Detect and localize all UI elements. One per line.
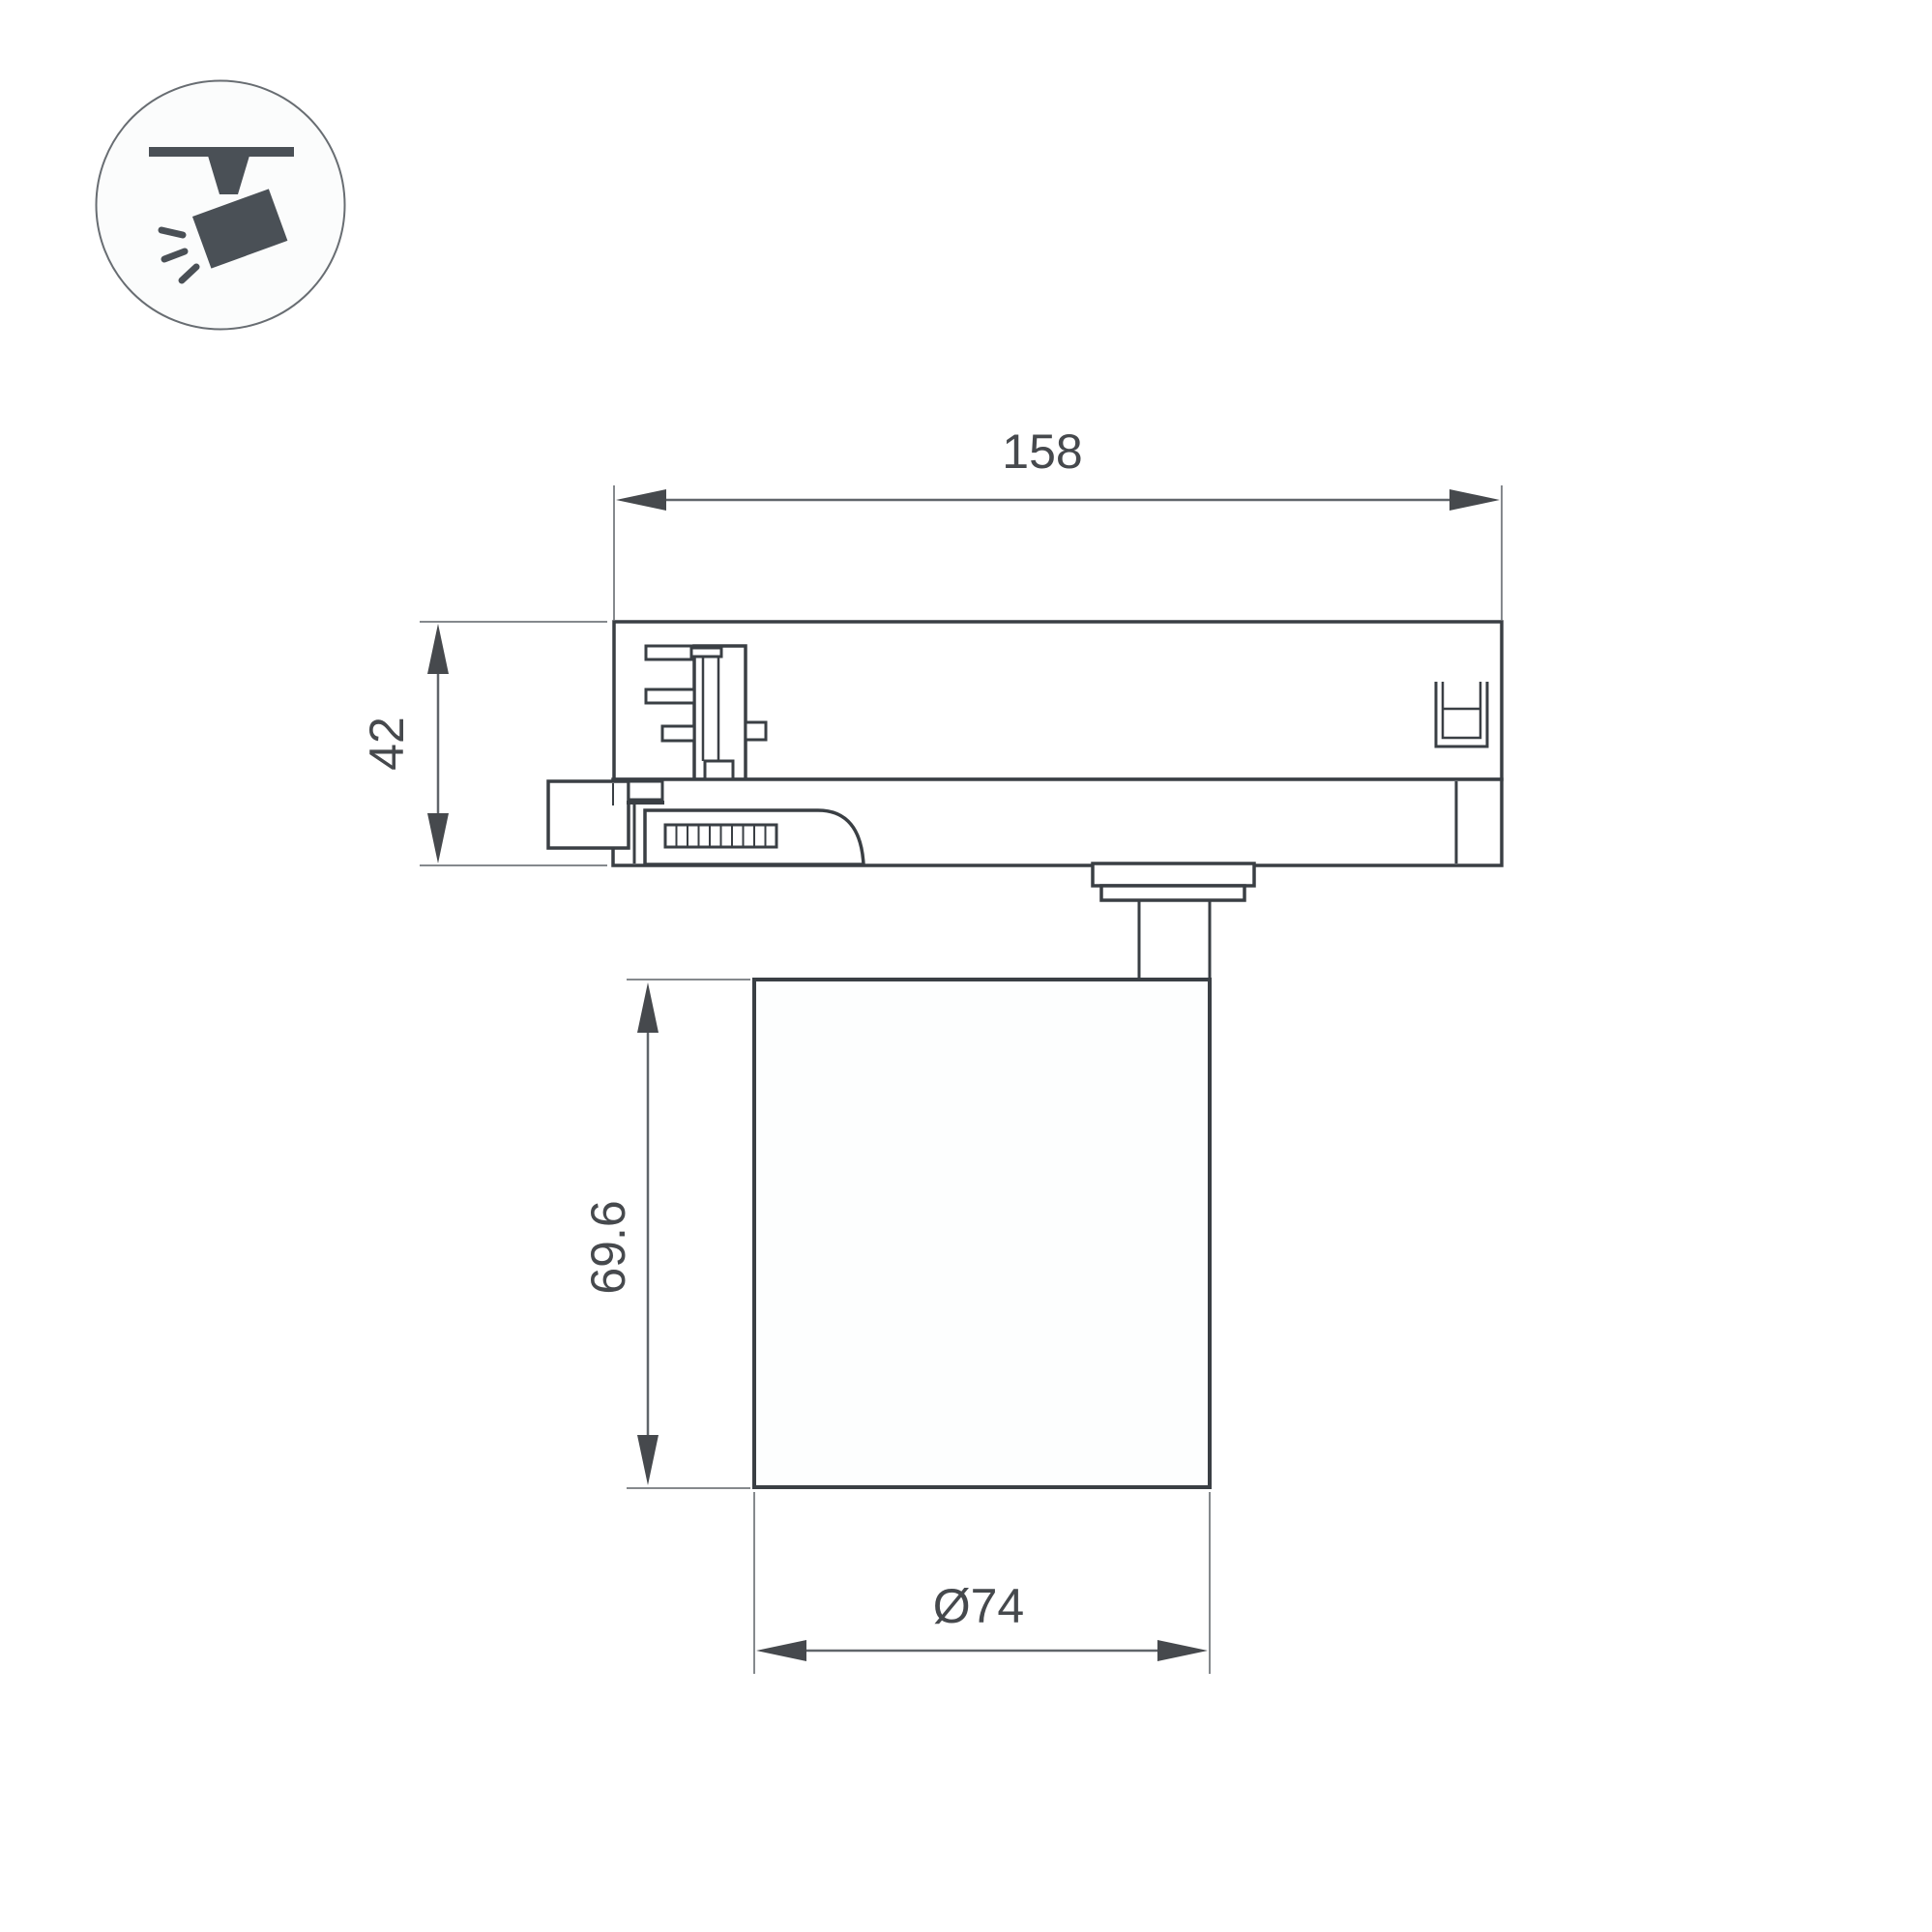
track-adapter — [614, 622, 1502, 779]
swivel-flange-lower — [1101, 886, 1244, 900]
arrowhead-right — [1449, 489, 1500, 511]
drawing-canvas: 158 42 — [0, 0, 1932, 1932]
swivel-flange-upper — [1093, 864, 1254, 886]
latch-detail-rect — [629, 781, 662, 800]
comb-tooth-top — [646, 646, 694, 659]
dimension-label-158: 158 — [1002, 424, 1082, 479]
adapter-lower-housing — [548, 779, 1502, 865]
comb-tooth-bottom — [662, 726, 694, 741]
dimension-label-69-6: 69.6 — [581, 1200, 635, 1294]
comb-tooth-middle — [646, 689, 694, 703]
icon-circle — [97, 81, 345, 330]
arrowhead-right — [1157, 1640, 1208, 1661]
icon-ceiling-track — [149, 147, 294, 157]
dimension-adapter-width: 158 — [614, 424, 1502, 620]
arrowhead-left — [756, 1640, 806, 1661]
dimension-body-diameter: Ø74 — [754, 1492, 1210, 1674]
arrowhead-down — [427, 813, 449, 864]
dimension-body-height: 69.6 — [581, 980, 750, 1488]
arrowhead-up — [637, 982, 659, 1033]
arrowhead-up — [427, 624, 449, 674]
ribbed-switch — [665, 825, 776, 847]
pin-foot — [705, 761, 733, 779]
comb-right-lug — [746, 722, 766, 740]
dimension-label-42: 42 — [360, 717, 414, 771]
technical-drawing: 158 42 — [0, 0, 1932, 1932]
arrowhead-down — [637, 1435, 659, 1485]
side-latch-box — [548, 781, 629, 848]
track-spotlight-icon — [97, 81, 345, 330]
dimension-label-d74: Ø74 — [933, 1579, 1025, 1633]
lamp-cylinder-body — [754, 980, 1210, 1487]
pin-cap — [691, 648, 721, 657]
swivel-joint — [1093, 864, 1254, 981]
arrowhead-left — [616, 489, 666, 511]
